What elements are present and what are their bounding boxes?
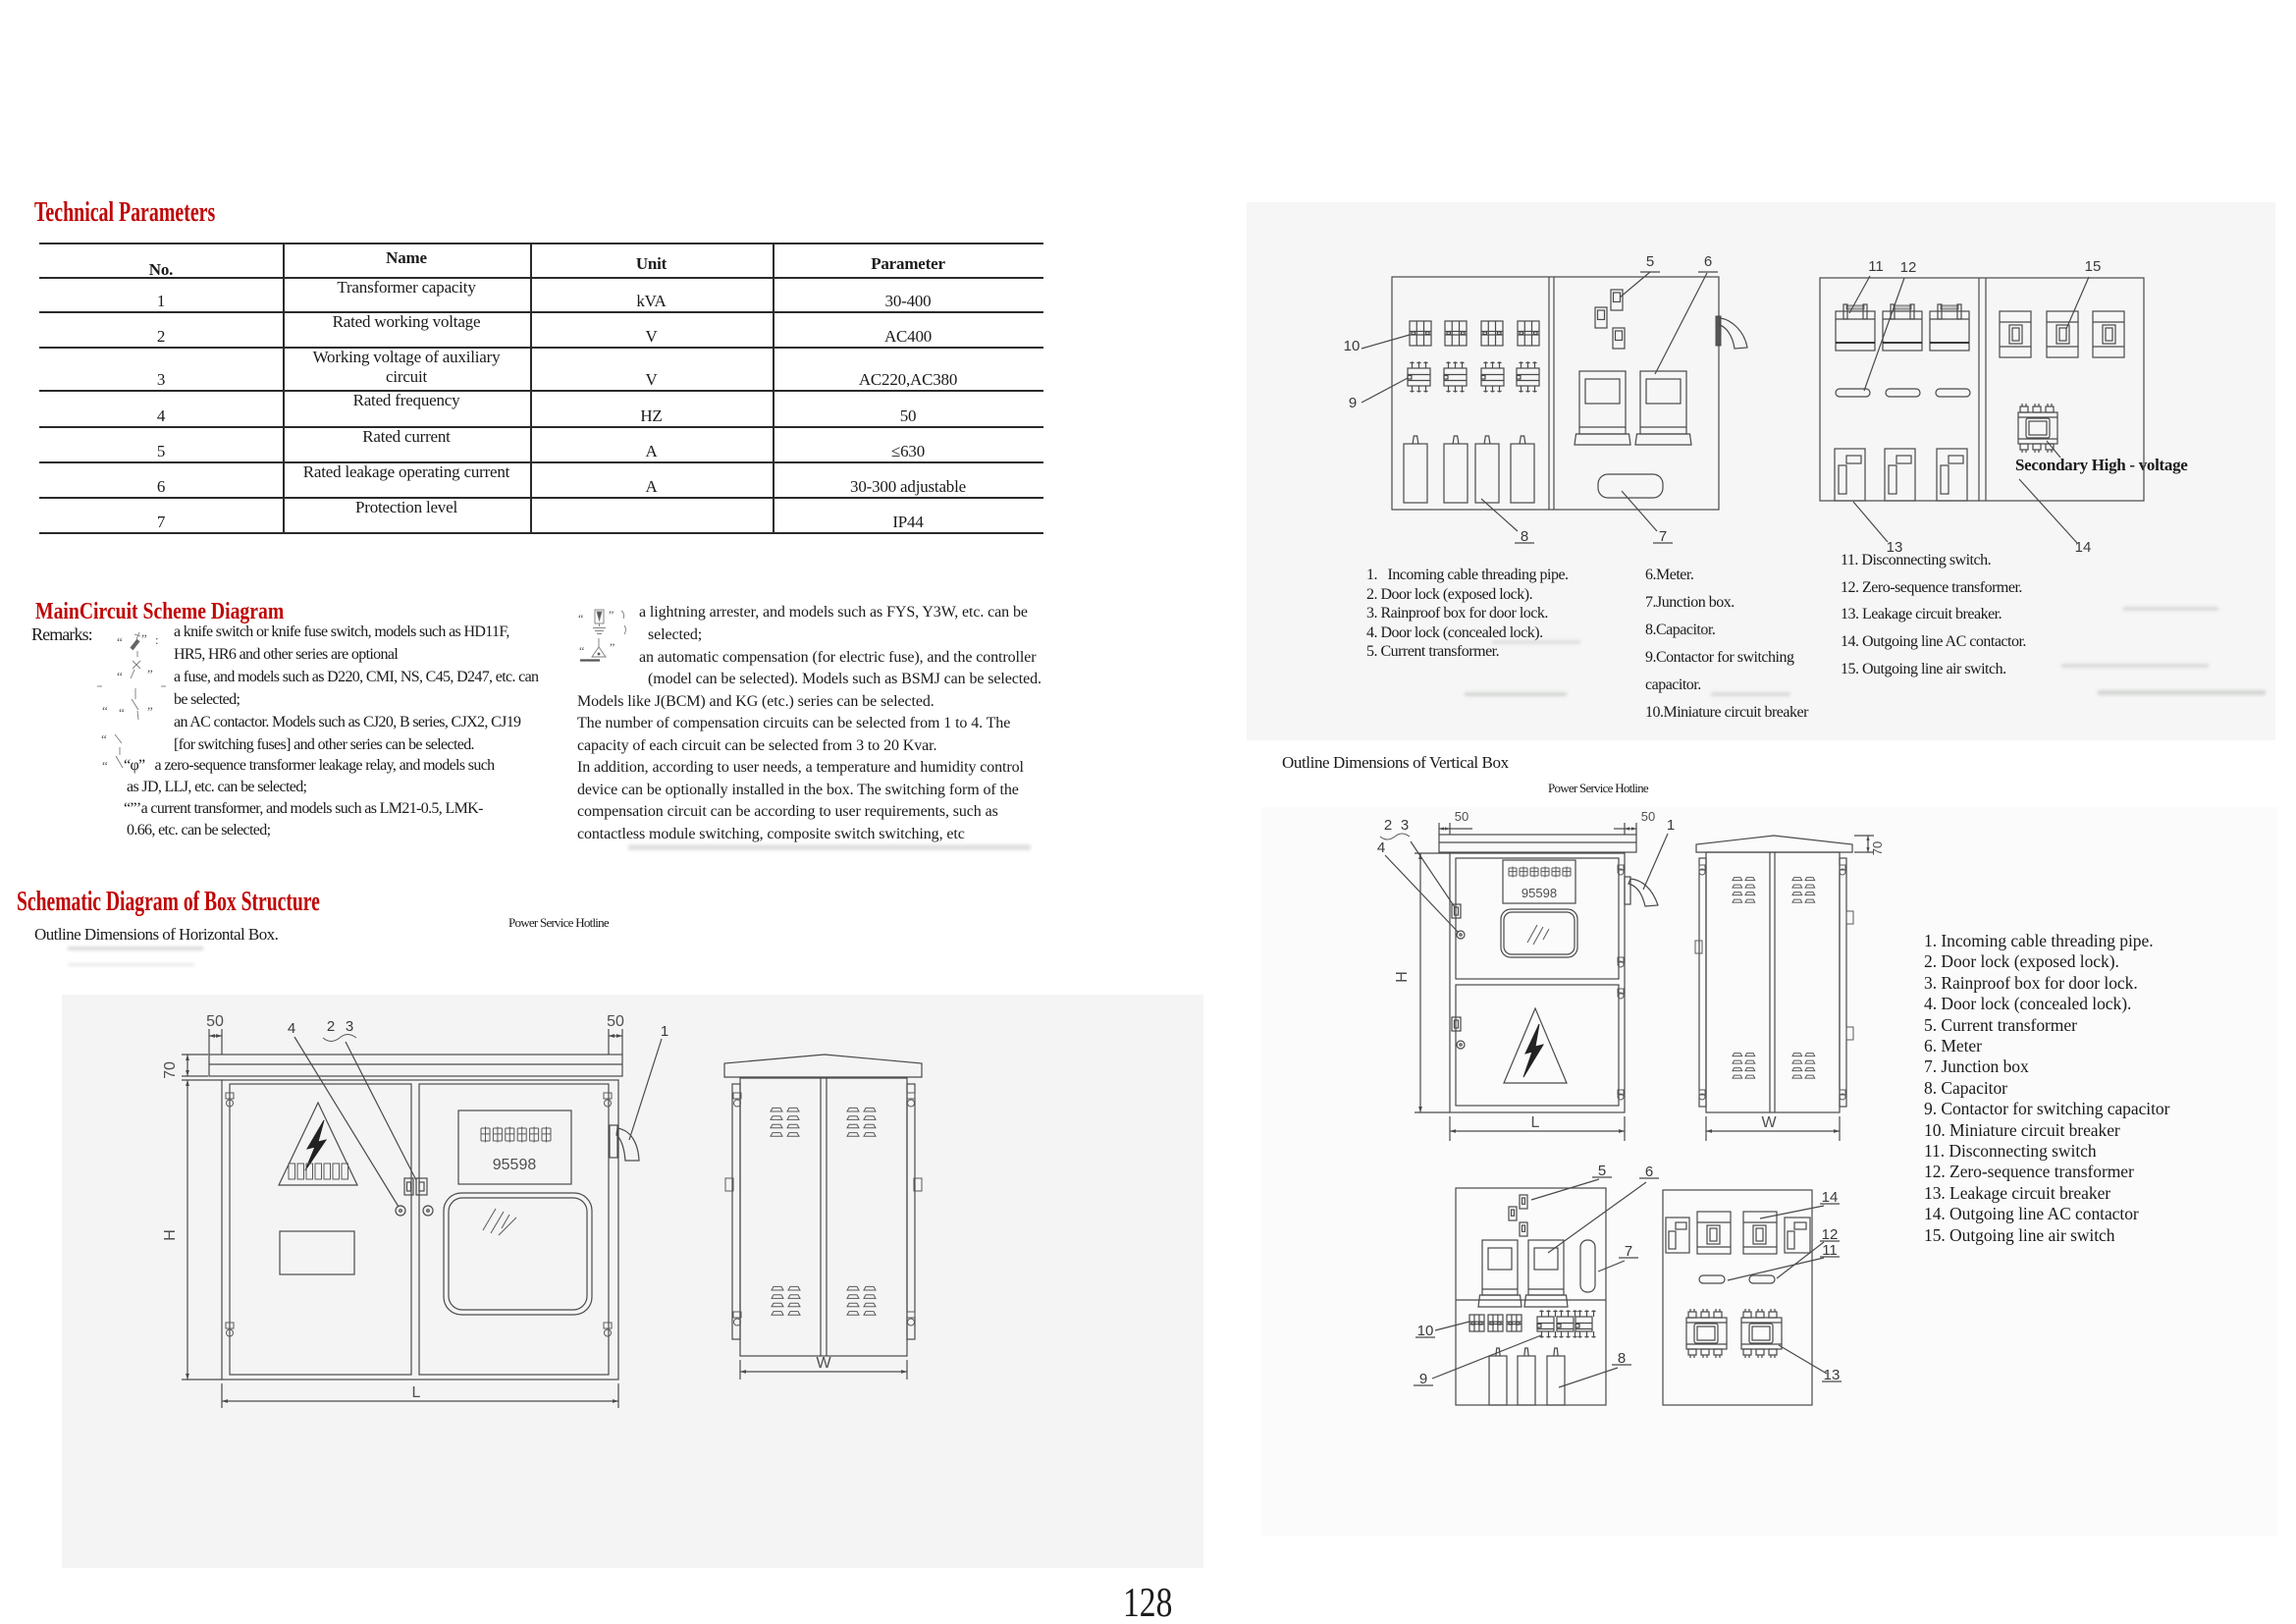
svg-text:50: 50 bbox=[206, 1013, 224, 1030]
svg-text:50: 50 bbox=[1641, 809, 1655, 824]
svg-text:2: 2 bbox=[1384, 817, 1392, 834]
svg-text:L: L bbox=[412, 1384, 421, 1401]
svg-text:“: “ bbox=[579, 644, 584, 658]
svg-text:13: 13 bbox=[1887, 539, 1903, 556]
svg-text:3: 3 bbox=[1401, 817, 1409, 834]
svg-text:4: 4 bbox=[1377, 839, 1385, 856]
svg-text:3: 3 bbox=[346, 1018, 353, 1035]
svg-text:“: “ bbox=[101, 731, 107, 746]
svg-text:“: “ bbox=[117, 669, 123, 683]
svg-text::: : bbox=[155, 632, 159, 647]
svg-text:15: 15 bbox=[2085, 258, 2102, 275]
svg-text:12: 12 bbox=[1900, 259, 1917, 276]
svg-text:9: 9 bbox=[1349, 395, 1357, 411]
svg-text:”: ” bbox=[147, 704, 153, 719]
svg-text:4: 4 bbox=[288, 1020, 295, 1037]
svg-text:“: “ bbox=[117, 634, 123, 649]
svg-text:1: 1 bbox=[661, 1023, 668, 1040]
svg-text:95598: 95598 bbox=[493, 1157, 537, 1173]
svg-text:“: “ bbox=[578, 612, 583, 625]
svg-text:H: H bbox=[162, 1229, 179, 1241]
svg-text:2: 2 bbox=[327, 1018, 335, 1035]
svg-text:”: ” bbox=[141, 631, 147, 646]
svg-text:”: ” bbox=[610, 640, 614, 654]
svg-text:50: 50 bbox=[1455, 809, 1468, 824]
svg-text:W: W bbox=[816, 1355, 831, 1372]
svg-text:“: “ bbox=[102, 703, 108, 718]
svg-text:”: ” bbox=[147, 667, 153, 681]
svg-text:H: H bbox=[1394, 971, 1411, 983]
svg-text:“: “ bbox=[102, 758, 108, 773]
svg-text:6: 6 bbox=[1704, 253, 1712, 270]
svg-text:10: 10 bbox=[1344, 338, 1361, 354]
svg-text:70: 70 bbox=[1870, 841, 1885, 855]
svg-text:70: 70 bbox=[162, 1061, 179, 1079]
svg-text:“: “ bbox=[119, 705, 125, 720]
svg-text:11: 11 bbox=[1868, 258, 1884, 275]
svg-text:14: 14 bbox=[2075, 539, 2092, 556]
svg-text:L: L bbox=[1531, 1114, 1540, 1131]
svg-text:50: 50 bbox=[607, 1013, 624, 1030]
svg-text:95598: 95598 bbox=[1522, 886, 1557, 900]
svg-text:5: 5 bbox=[1646, 253, 1654, 270]
svg-text:W: W bbox=[1761, 1114, 1777, 1131]
svg-text:1: 1 bbox=[1667, 817, 1675, 834]
svg-text:”: ” bbox=[609, 608, 614, 622]
